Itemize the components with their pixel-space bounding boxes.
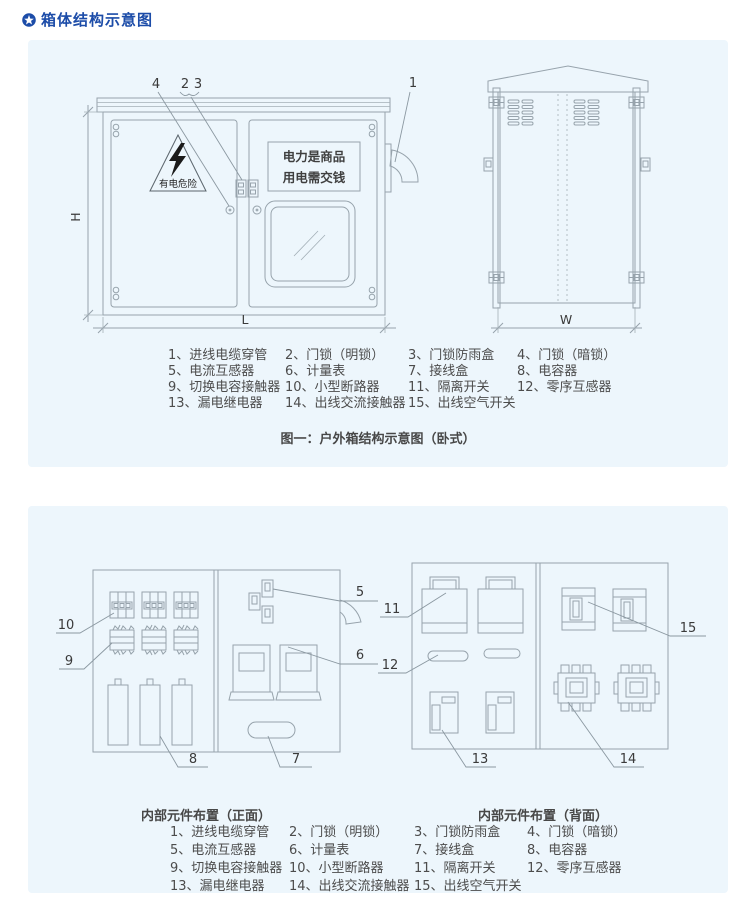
figure1-caption: 图一：户外箱结构示意图（卧式） (28, 428, 728, 447)
legend-item: 12、零序互感器 (517, 380, 616, 396)
legend-item: 9、切换电容接触器 (170, 860, 289, 878)
callout-6: 6 (356, 648, 364, 663)
side-view (484, 66, 650, 333)
legend-item: 3、门锁防雨盒 (408, 348, 517, 364)
legend-item: 2、门锁（明锁） (289, 824, 414, 842)
callout-8: 8 (189, 752, 197, 767)
callout-14: 14 (620, 752, 637, 767)
callout-5: 5 (356, 585, 364, 600)
sign-line2: 用电需交钱 (282, 170, 346, 185)
dim-H (83, 105, 103, 322)
legend-top: 1、进线电缆穿管 2、门锁（明锁） 3、门锁防雨盒 4、门锁（暗锁） 5、电流互… (168, 348, 616, 412)
junction-box (248, 722, 295, 738)
legend-item: 15、出线空气开关 (414, 878, 527, 896)
legend-item: 5、电流互感器 (168, 364, 285, 380)
legend-item: 1、进线电缆穿管 (168, 348, 285, 364)
legend-item: 8、电容器 (517, 364, 616, 380)
vent-louvers (508, 100, 599, 125)
legend-item: 13、漏电继电器 (170, 878, 289, 896)
dim-label-l: L (242, 312, 249, 327)
legend-item: 4、门锁（暗锁） (517, 348, 616, 364)
legend-item: 6、计量表 (285, 364, 408, 380)
legend-item: 11、隔离开关 (408, 380, 517, 396)
callout-3: 3 (194, 77, 202, 92)
page-header: 箱体结构示意图 (22, 9, 153, 30)
mini-circuit-breakers (110, 592, 198, 618)
callout-10: 10 (58, 618, 75, 633)
cable-slots (428, 649, 520, 661)
front-view (83, 98, 418, 333)
callout-11: 11 (384, 602, 401, 617)
callout-9: 9 (65, 654, 73, 669)
legend-item: 10、小型断路器 (289, 860, 414, 878)
outgoing-air-switches (562, 588, 646, 631)
legend-item: 7、接线盒 (408, 364, 517, 380)
warning-text: 有电危险 (159, 178, 198, 190)
legend-item: 9、切换电容接触器 (168, 380, 285, 396)
callout-4: 4 (152, 77, 160, 92)
caption-internal-back: 内部元件布置（背面） (453, 805, 633, 824)
page: { "page": { "title": "箱体结构示意图" }, "color… (0, 0, 750, 900)
legend-item: 6、计量表 (289, 842, 414, 860)
internal-layout-drawing: 10 9 8 7 5 6 11 12 13 15 14 (28, 506, 728, 776)
meter-window (265, 201, 355, 287)
callout-15: 15 (680, 621, 697, 636)
legend-bottom: 1、进线电缆穿管 2、门锁（明锁） 3、门锁防雨盒 4、门锁（暗锁） 5、电流互… (170, 824, 626, 896)
figure1-panel: 4 2 3 1 有电危险 电力是商品 用电需交钱 H L W 1、进线电缆穿管 … (28, 40, 728, 467)
legend-item: 3、门锁防雨盒 (414, 824, 527, 842)
legend-item: 7、接线盒 (414, 842, 527, 860)
legend-item: 1、进线电缆穿管 (170, 824, 289, 842)
capacitors (108, 679, 192, 745)
callout-2: 2 (181, 77, 189, 92)
page-title: 箱体结构示意图 (41, 9, 153, 30)
legend-item: 12、零序互感器 (527, 860, 626, 878)
figure2-panel: 10 9 8 7 5 6 11 12 13 15 14 内部元件布置（正面） 内… (28, 506, 728, 893)
callout-13: 13 (472, 752, 489, 767)
door-latches (226, 180, 261, 214)
legend-item: 8、电容器 (527, 842, 626, 860)
star-circle-icon (22, 13, 36, 27)
legend-item: 13、漏电继电器 (168, 396, 285, 412)
legend-item: 11、隔离开关 (414, 860, 527, 878)
side-latch-left (484, 158, 493, 171)
current-transformers (249, 580, 273, 623)
callout-1: 1 (409, 76, 417, 91)
internal-back-view (412, 563, 668, 749)
callout-leaders (56, 589, 706, 767)
outdoor-box-drawing: 4 2 3 1 有电危险 电力是商品 用电需交钱 H L W (28, 40, 728, 350)
callout-12: 12 (382, 658, 399, 673)
legend-item: 14、出线交流接触器 (289, 878, 414, 896)
callout-7: 7 (292, 752, 300, 767)
dim-label-w: W (560, 312, 572, 327)
caption-internal-front: 内部元件布置（正面） (116, 805, 296, 824)
capacitor-contactors (110, 625, 198, 655)
sign-line1: 电力是商品 (283, 149, 346, 164)
leakage-relays (430, 692, 514, 733)
legend-item: 2、门锁（明锁） (285, 348, 408, 364)
legend-item: 15、出线空气开关 (408, 396, 517, 412)
legend-item: 10、小型断路器 (285, 380, 408, 396)
legend-item: 14、出线交流接触器 (285, 396, 408, 412)
legend-item: 5、电流互感器 (170, 842, 289, 860)
door-handle (340, 600, 361, 624)
dim-label-h: H (68, 212, 83, 221)
isolating-switches (422, 577, 523, 633)
side-latch-right (641, 158, 650, 171)
door-handle (385, 144, 418, 192)
legend-item: 4、门锁（暗锁） (527, 824, 626, 842)
